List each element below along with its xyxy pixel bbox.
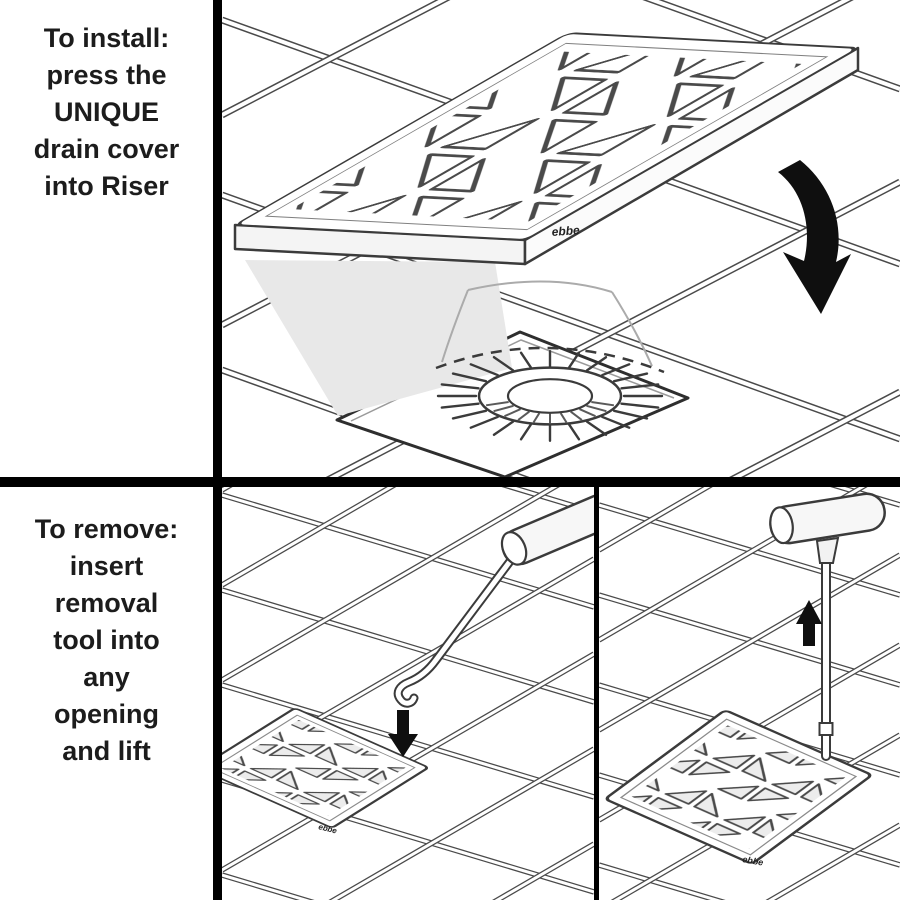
brand-mark: ebbe [551,223,580,239]
tool-handle [768,491,887,546]
caption-line: To remove: [35,511,179,548]
drain-cover: ebbe [235,33,858,264]
tool-handle [497,490,594,569]
caption-line: tool into [53,622,159,659]
remove-caption: To remove: insert removal tool into any … [0,487,213,900]
tool-neck [817,538,838,563]
drain-riser [438,351,662,441]
remove-hook-illustration: ebbe [222,487,594,900]
tool-collar [820,723,833,735]
caption-line: any [83,659,130,696]
caption-line: press the [46,57,166,94]
caption-line: opening [54,696,159,733]
install-illustration: ebbe [222,0,900,477]
caption-line: UNIQUE [54,94,159,131]
install-caption: To install: press the UNIQUE drain cover… [0,0,213,477]
panel-divider-vertical [213,0,222,900]
caption-line: into Riser [44,168,169,205]
caption-line: insert [70,548,144,585]
caption-line: To install: [44,20,170,57]
remove-lift-illustration: ebbe [599,487,900,900]
panel-divider-horizontal [0,477,900,487]
instruction-sheet: To install: press the UNIQUE drain cover… [0,0,900,900]
caption-line: and lift [62,733,151,770]
caption-line: drain cover [34,131,180,168]
arrow-up-icon [796,600,822,646]
caption-line: removal [55,585,159,622]
